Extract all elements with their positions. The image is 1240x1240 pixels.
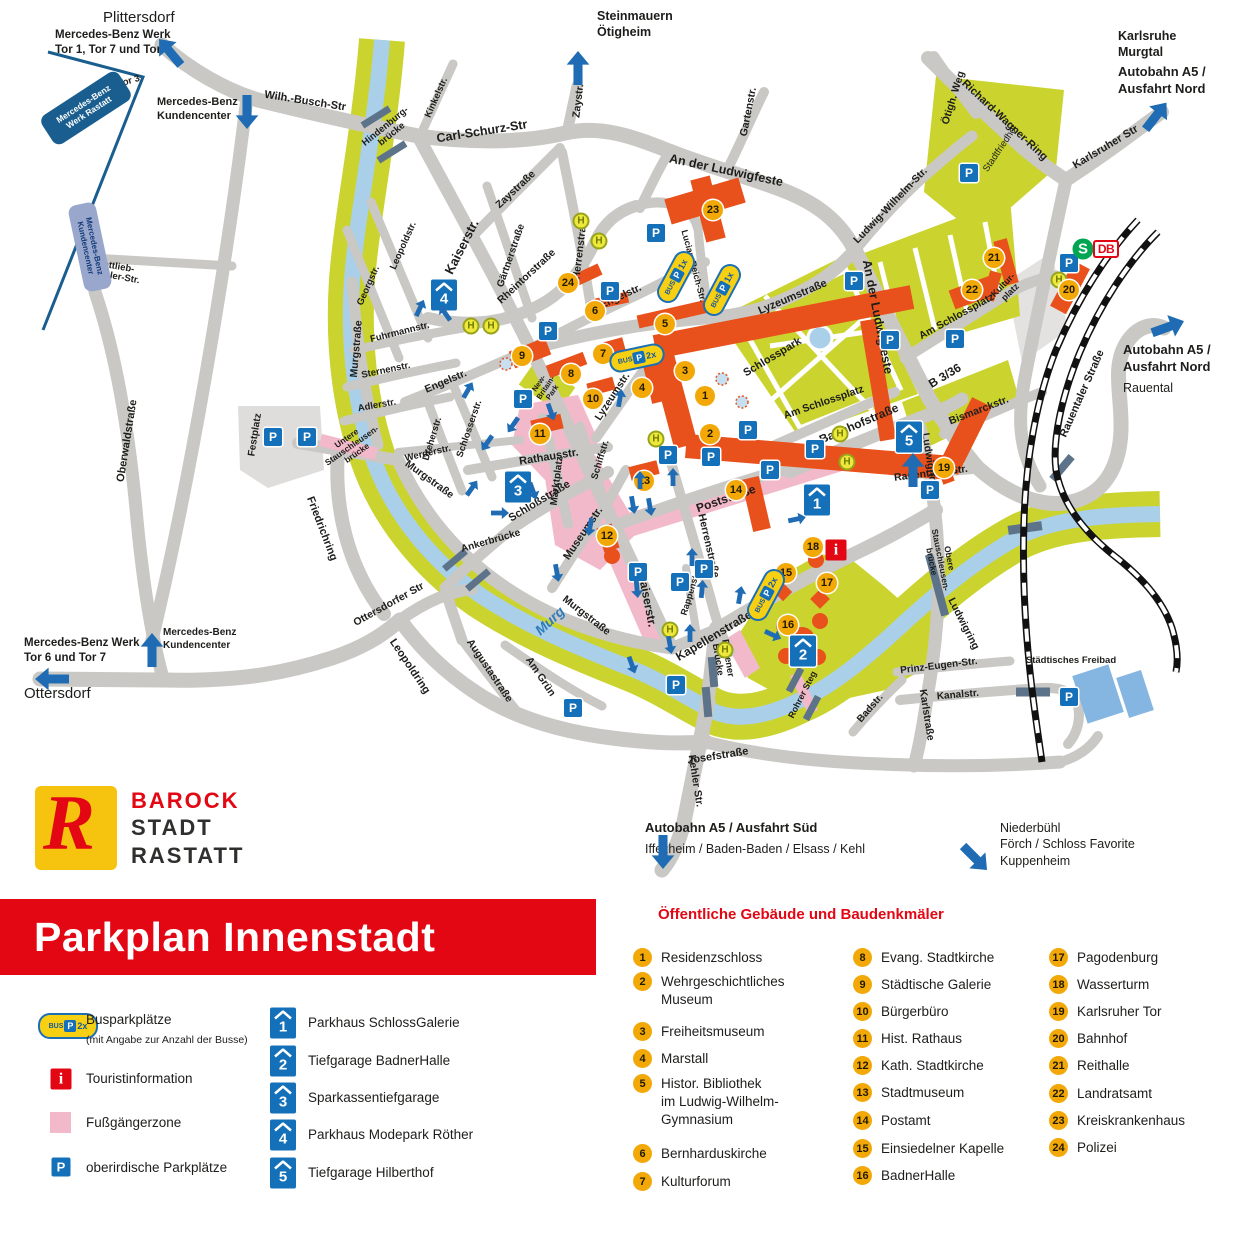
page-title: Parkplan Innenstadt [0, 899, 596, 975]
street-label: Fuhrmannstr. [369, 321, 430, 346]
garage-icon: 5 [896, 422, 922, 453]
street-label: Marktplatz [550, 456, 567, 506]
street-label: Ötigh. Weg [941, 70, 968, 126]
garage-number: 1 [813, 497, 821, 512]
direction-arrow [630, 580, 644, 599]
landmark-badge: 3 [675, 361, 695, 381]
street-label: Ludwig-Wilhelm-Str. [852, 166, 930, 246]
street-label: Stadtfriedhof [982, 124, 1021, 174]
street-label: Karlstraße [916, 688, 935, 741]
direction-arrow [583, 517, 598, 537]
direction-arrow [140, 633, 164, 667]
tourist-info-icon: i [826, 540, 847, 561]
street-label: Dreherstr. [422, 416, 445, 462]
parking-icon: P [264, 428, 282, 446]
building-list-item: 7Kulturforum [633, 1172, 731, 1191]
garage-legend-label: Tiefgarage Hilberthof [308, 1165, 434, 1180]
destination-label: Plittersdorf [103, 8, 175, 28]
building-name: Polizei [1077, 1138, 1117, 1157]
building-number-badge: 8 [853, 948, 872, 967]
street-label: Lyzeumstraße [757, 278, 829, 318]
building-number-badge: 17 [1049, 948, 1068, 967]
street-label: Augustastraße [464, 637, 515, 704]
bus-stop-icon: H [839, 454, 856, 471]
bus-stop-icon: H [463, 318, 480, 335]
destination-label: Mercedes-Benz Werk Tor 6 und Tor 7 [24, 636, 139, 666]
building-list-item: 20Bahnhof [1049, 1029, 1127, 1048]
direction-arrow [684, 624, 696, 642]
city-logo: R BAROCK STADT RASTATT [35, 786, 244, 870]
street-label: New- Britain- Park [529, 370, 564, 405]
direction-arrow [613, 388, 628, 408]
direction-arrow [503, 414, 523, 436]
building-name: Wasserturm [1077, 975, 1149, 994]
destination-label: Iffezheim / Baden-Baden / Elsass / Kehl [645, 841, 865, 857]
landmark-badge: 8 [561, 364, 581, 384]
destination-label: Autobahn A5 / Ausfahrt Nord [1118, 64, 1206, 98]
parking-icon: P [659, 446, 677, 464]
building-list-item: 9Städtische Galerie [853, 975, 991, 994]
street-label: Kanalstr. [936, 689, 979, 703]
street-label: Murgstraße [403, 459, 456, 502]
street-label: Murgstraße [349, 320, 365, 378]
landmark-badge: 18 [803, 537, 823, 557]
street-label: Carl-Schurz-Str [436, 118, 529, 146]
building-list-item: 10Bürgerbüro [853, 1002, 949, 1021]
direction-arrow [901, 453, 925, 487]
garage-legend-label: Sparkassentiefgarage [308, 1090, 439, 1105]
parking-icon: P [1060, 688, 1078, 706]
garage-icon: 5 [270, 1158, 296, 1189]
direction-arrow [651, 835, 675, 869]
building-list-item: 3Freiheitsmuseum [633, 1022, 765, 1041]
garage-number: 4 [279, 1132, 287, 1147]
parking-icon: P [761, 461, 779, 479]
direction-arrow [626, 495, 641, 515]
parking-icon: P [629, 563, 647, 581]
direction-arrow [695, 580, 709, 599]
logo-line3: RASTATT [131, 842, 244, 870]
landmark-badge: 14 [726, 480, 746, 500]
street-label: Schlosspark [742, 336, 804, 380]
building-number-badge: 4 [633, 1049, 652, 1068]
landmark-badge: 23 [703, 200, 723, 220]
landmark-badge: 19 [934, 458, 954, 478]
building-list-item: 11Hist. Rathaus [853, 1029, 962, 1048]
bus-stop-icon: H [717, 642, 734, 659]
street-label: Friedrichring [303, 495, 338, 563]
logo-line2: STADT [131, 814, 244, 842]
building-list-item: 4Marstall [633, 1049, 708, 1068]
building-number-badge: 6 [633, 1144, 652, 1163]
db-logo: DB [1093, 240, 1119, 258]
direction-arrow [663, 635, 678, 655]
street-label: Am Grün [523, 655, 558, 699]
street-label: Leopoldring [386, 637, 431, 696]
building-name: Bahnhof [1077, 1029, 1127, 1048]
direction-arrow [733, 585, 748, 605]
building-name: Freiheitsmuseum [661, 1022, 765, 1041]
building-name: Bernharduskirche [661, 1144, 767, 1163]
street-label: Untere Stauschleusen- brücke [318, 417, 385, 476]
parking-icon: P [667, 676, 685, 694]
building-name: Einsiedelner Kapelle [881, 1139, 1004, 1158]
direction-arrow [477, 432, 497, 454]
building-name: Karlsruher Tor [1077, 1002, 1162, 1021]
building-list-item: 5Histor. Bibliothek im Ludwig-Wilhelm- G… [633, 1074, 779, 1130]
street-label: Hindenburg- brücke [361, 105, 418, 156]
direction-arrow [954, 837, 995, 878]
parking-icon: P [671, 573, 689, 591]
building-name: Pagodenburg [1077, 948, 1158, 967]
street-label: Rathausstr. [518, 447, 579, 468]
building-name: Kulturforum [661, 1172, 731, 1191]
direction-arrow [491, 507, 509, 519]
direction-arrow [686, 548, 698, 566]
landmark-badge: 4 [632, 378, 652, 398]
street-label: Oberwaldstraße [116, 399, 141, 483]
buildings-list-header: Öffentliche Gebäude und Baudenkmäler [658, 906, 944, 923]
building-number-badge: 21 [1049, 1056, 1068, 1075]
building-number-badge: 1 [633, 948, 652, 967]
mercedes-label-box: Mercedes-Benz Kundencenter [67, 201, 113, 293]
building-name: Marstall [661, 1049, 708, 1068]
building-list-item: 6Bernharduskirche [633, 1144, 767, 1163]
street-label: Zaystraße [494, 169, 538, 211]
direction-arrow [634, 471, 646, 489]
building-name: Kreiskrankenhaus [1077, 1111, 1185, 1130]
parking-icon: P [702, 448, 720, 466]
garage-legend-label: Tiefgarage BadnerHalle [308, 1053, 450, 1068]
garage-legend-label: Parkhaus Modepark Röther [308, 1127, 473, 1142]
building-number-badge: 7 [633, 1172, 652, 1191]
street-label: Festplatz [247, 413, 264, 457]
parking-icon: P [298, 428, 316, 446]
parking-icon: P [564, 699, 582, 717]
parking-icon: P [539, 322, 557, 340]
street-label: Rohrer Steg [787, 670, 819, 720]
street-label: Sternenstr. [361, 361, 412, 381]
street-label: B 3/36 [927, 361, 964, 390]
street-label: Murg [532, 604, 567, 638]
street-label: Bahnhofstraße [817, 401, 900, 446]
mercedes-label-box: Mercedes-Benz Werk Rastatt [38, 69, 134, 148]
direction-arrow [411, 297, 429, 318]
destination-label: Autobahn A5 / Ausfahrt Nord [1123, 342, 1211, 376]
garage-icon: 2 [270, 1046, 296, 1077]
building-name: Reithalle [1077, 1056, 1130, 1075]
building-number-badge: 19 [1049, 1002, 1068, 1021]
street-label: Gartenstr. [739, 87, 760, 138]
street-label: Gärtnerstraße [496, 223, 528, 289]
parking-icon: P [739, 421, 757, 439]
map-overlays: Wilh.-Busch-StrCarl-Schurz-StrKinkelstr.… [0, 0, 1240, 1240]
destination-label: Rauental [1123, 380, 1173, 396]
tourist-info-label: Touristinformation [86, 1071, 193, 1086]
building-number-badge: 10 [853, 1002, 872, 1021]
building-name: Stadtmuseum [881, 1083, 964, 1102]
building-number-badge: 23 [1049, 1111, 1068, 1130]
building-name: Histor. Bibliothek im Ludwig-Wilhelm- Gy… [661, 1074, 779, 1130]
building-list-item: 21Reithalle [1049, 1056, 1130, 1075]
building-list-item: 16BadnerHalle [853, 1166, 955, 1185]
street-label: An der Ludwigfeste [668, 152, 784, 189]
street-label: Kaiserstr. [442, 217, 481, 276]
landmark-badge: 22 [962, 280, 982, 300]
building-number-badge: 2 [633, 972, 652, 991]
street-label: Rheintorstraße [496, 247, 558, 306]
bus-stop-icon: H [483, 318, 500, 335]
garage-icon: 3 [270, 1083, 296, 1114]
destination-label: Karlsruhe Murgtal [1118, 28, 1176, 61]
garage-icon: 2 [790, 636, 816, 667]
landmark-badge: 5 [655, 314, 675, 334]
landmark-badge: 9 [512, 346, 532, 366]
building-list-item: 17Pagodenburg [1049, 948, 1158, 967]
street-label: Richard-Wagner-Ring [959, 78, 1049, 164]
direction-arrow [1148, 310, 1188, 344]
direction-arrow [542, 401, 559, 422]
landmark-badge: 17 [817, 573, 837, 593]
direction-arrow [550, 563, 565, 583]
direction-arrow [235, 95, 259, 129]
parkplan-poster: Wilh.-Busch-StrCarl-Schurz-StrKinkelstr.… [0, 0, 1240, 1240]
street-label: Adlerstr. [357, 398, 397, 415]
direction-arrow [667, 468, 679, 486]
tourist-info-legend-icon: i [51, 1069, 72, 1090]
building-list-item: 1Residenzschloss [633, 948, 762, 967]
building-number-badge: 9 [853, 975, 872, 994]
building-number-badge: 18 [1049, 975, 1068, 994]
street-label: Städtisches Freibad [1026, 656, 1116, 666]
bus-stop-icon: H [591, 233, 608, 250]
building-list-item: 12Kath. Stadtkirche [853, 1056, 984, 1075]
building-name: Bürgerbüro [881, 1002, 949, 1021]
street-label: Ottersdorfer Str [352, 581, 426, 629]
building-name: Kath. Stadtkirche [881, 1056, 984, 1075]
garage-number: 1 [279, 1020, 287, 1035]
street-label: Leopoldstr. [389, 221, 419, 272]
surface-parking-label: oberirdische Parkplätze [86, 1160, 227, 1175]
landmark-badge: 2 [700, 424, 720, 444]
building-number-badge: 11 [853, 1029, 872, 1048]
building-number-badge: 12 [853, 1056, 872, 1075]
street-label: Murgstraße [560, 594, 612, 638]
street-label: Josefstraße [687, 746, 750, 767]
destination-label: Mercedes-Benz Kundencenter [157, 95, 238, 124]
destination-label: Steinmauern Ötigheim [597, 8, 673, 41]
building-list-item: 18Wasserturm [1049, 975, 1149, 994]
garage-number: 3 [279, 1095, 287, 1110]
building-name: Residenzschloss [661, 948, 762, 967]
bus-parking-label: Busparkplätze [86, 1012, 172, 1027]
direction-arrow [35, 667, 69, 691]
building-list-item: 13Stadtmuseum [853, 1083, 964, 1102]
pedestrian-zone-legend-swatch [50, 1112, 71, 1133]
building-name: Städtische Galerie [881, 975, 991, 994]
direction-arrow [787, 511, 807, 526]
destination-label: Mercedes-Benz Kundencenter [163, 626, 236, 652]
landmark-badge: 11 [530, 424, 550, 444]
garage-number: 5 [905, 434, 913, 449]
garage-legend-label: Parkhaus SchlossGalerie [308, 1015, 460, 1030]
logo-mark-icon: R [35, 786, 117, 870]
bus-parking-icon: BUSP2x [607, 341, 666, 374]
street-label: Kehler Str. [685, 754, 704, 808]
bus-parking-icon: BUSP1x [653, 247, 699, 307]
surface-parking-legend-icon: P [52, 1158, 71, 1177]
direction-arrow [458, 379, 477, 401]
street-label: Ludwigring [945, 596, 981, 652]
building-list-item: 2Wehrgeschichtliches Museum [633, 972, 785, 1009]
parking-icon: P [806, 440, 824, 458]
pedestrian-zone-label: Fußgängerzone [86, 1115, 181, 1130]
street-label: An der Ludwigfeste [859, 259, 894, 375]
building-number-badge: 22 [1049, 1084, 1068, 1103]
building-number-badge: 5 [633, 1074, 652, 1093]
building-number-badge: 13 [853, 1083, 872, 1102]
direction-arrow [643, 497, 658, 517]
building-list-item: 24Polizei [1049, 1138, 1117, 1157]
street-label: Schiffstr. [590, 439, 612, 481]
street-label: Zaystr. [571, 84, 586, 119]
building-number-badge: 20 [1049, 1029, 1068, 1048]
bus-stop-icon: H [648, 431, 665, 448]
parking-icon: P [845, 272, 863, 290]
bus-stop-icon: H [832, 426, 849, 443]
building-name: Hist. Rathaus [881, 1029, 962, 1048]
destination-label: Niederbühl Förch / Schloss Favorite Kupp… [1000, 820, 1135, 869]
landmark-badge: 1 [695, 386, 715, 406]
street-label: Am Schlossplatz [782, 384, 865, 422]
building-list-item: 8Evang. Stadtkirche [853, 948, 994, 967]
garage-number: 3 [514, 484, 522, 499]
landmark-badge: 12 [597, 526, 617, 546]
garage-number: 2 [279, 1058, 287, 1073]
garage-icon: 1 [804, 485, 830, 516]
parking-icon: P [881, 331, 899, 349]
street-label: Karlsruher Str [1071, 124, 1141, 172]
landmark-badge: 20 [1059, 280, 1079, 300]
building-name: Postamt [881, 1111, 931, 1130]
building-name: Landratsamt [1077, 1084, 1152, 1103]
landmark-badge: 21 [984, 248, 1004, 268]
building-name: Evang. Stadtkirche [881, 948, 994, 967]
building-list-item: 22Landratsamt [1049, 1084, 1152, 1103]
street-label: Georgstr. [356, 265, 383, 308]
logo-line1: BAROCK [131, 787, 244, 815]
street-label: Wilh.-Busch-Str [263, 90, 346, 115]
street-label: Kinkelstr. [424, 76, 451, 119]
landmark-badge: 6 [585, 301, 605, 321]
building-list-item: 23Kreiskrankenhaus [1049, 1111, 1185, 1130]
sbahn-logo: S [1073, 239, 1094, 260]
title-banner: Parkplan Innenstadt [0, 899, 596, 975]
parking-icon: P [514, 390, 532, 408]
building-name: Wehrgeschichtliches Museum [661, 972, 785, 1009]
direction-arrow [1136, 95, 1176, 137]
street-label: Bismarckstr. [948, 394, 1011, 427]
building-name: BadnerHalle [881, 1166, 955, 1185]
direction-arrow [462, 477, 482, 499]
direction-arrow [623, 654, 640, 675]
landmark-badge: 24 [558, 273, 578, 293]
building-list-item: 19Karlsruher Tor [1049, 1002, 1162, 1021]
parking-icon: P [960, 164, 978, 182]
street-label: Ankerbrücke [460, 528, 522, 555]
building-number-badge: 16 [853, 1166, 872, 1185]
street-label: Obere Stauschleusen- brücke [921, 527, 960, 594]
building-list-item: 14Postamt [853, 1111, 931, 1130]
garage-number: 2 [799, 648, 807, 663]
garage-icon: 4 [270, 1120, 296, 1151]
parking-icon: P [647, 224, 665, 242]
bus-parking-sublabel: (mit Angabe zur Anzahl der Busse) [86, 1034, 248, 1046]
building-number-badge: 24 [1049, 1138, 1068, 1157]
bus-parking-icon: BUSP1x [699, 260, 745, 320]
parking-icon: P [946, 330, 964, 348]
street-label: Kultur- platz [990, 272, 1025, 307]
street-label: Werderstr. [404, 444, 452, 465]
building-number-badge: 3 [633, 1022, 652, 1041]
garage-number: 5 [279, 1170, 287, 1185]
street-label: Rauentaler Straße [1058, 349, 1107, 440]
building-list-item: 15Einsiedelner Kapelle [853, 1139, 1004, 1158]
direction-arrow [566, 51, 590, 85]
building-number-badge: 14 [853, 1111, 872, 1130]
landmark-badge: 10 [583, 389, 603, 409]
parking-icon: P [601, 282, 619, 300]
garage-icon: 1 [270, 1008, 296, 1039]
building-number-badge: 15 [853, 1139, 872, 1158]
street-label: Prinz-Eugen-Str. [900, 657, 979, 677]
bus-stop-icon: H [573, 213, 590, 230]
street-label: Badstr. [856, 693, 886, 726]
